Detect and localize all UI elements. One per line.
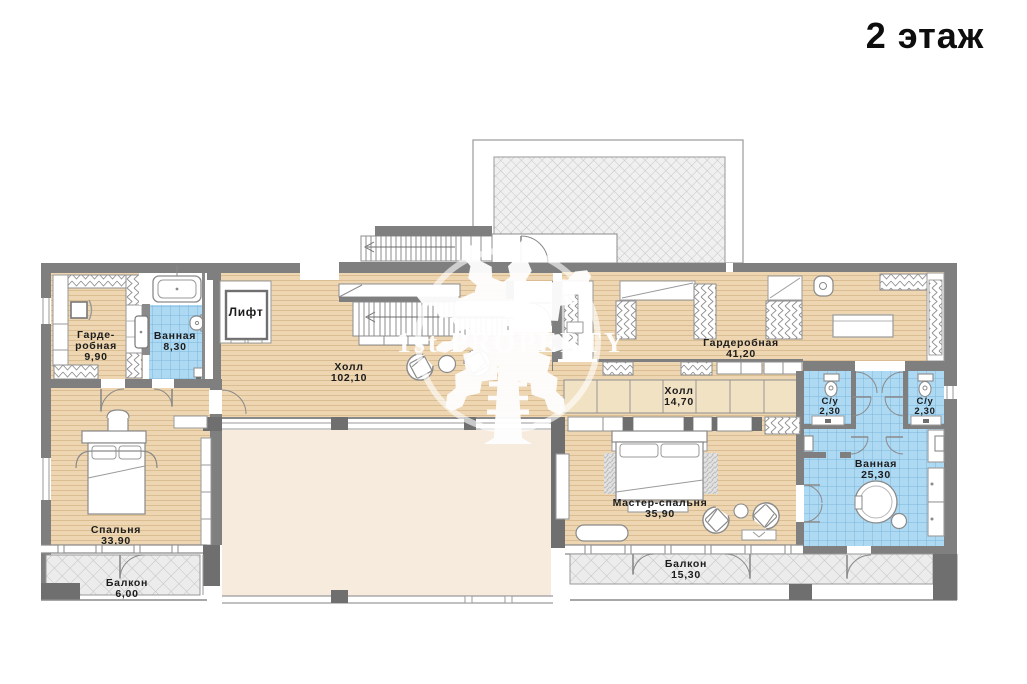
svg-text:8,30: 8,30 xyxy=(163,341,186,353)
svg-text:25,30: 25,30 xyxy=(861,469,891,481)
svg-text:2,30: 2,30 xyxy=(819,406,840,417)
svg-text:2,30: 2,30 xyxy=(914,406,935,417)
svg-text:35,90: 35,90 xyxy=(645,508,675,520)
svg-text:41,20: 41,20 xyxy=(726,348,756,360)
svg-text:Лифт: Лифт xyxy=(229,305,264,319)
svg-text:14,70: 14,70 xyxy=(664,396,694,408)
svg-text:15,30: 15,30 xyxy=(671,569,701,581)
svg-text:9,90: 9,90 xyxy=(84,351,107,363)
svg-text:2 этаж: 2 этаж xyxy=(866,15,985,56)
svg-text:1st PROPERTY: 1st PROPERTY xyxy=(397,328,627,359)
svg-text:102,10: 102,10 xyxy=(331,372,367,384)
svg-text:6,00: 6,00 xyxy=(115,588,138,600)
